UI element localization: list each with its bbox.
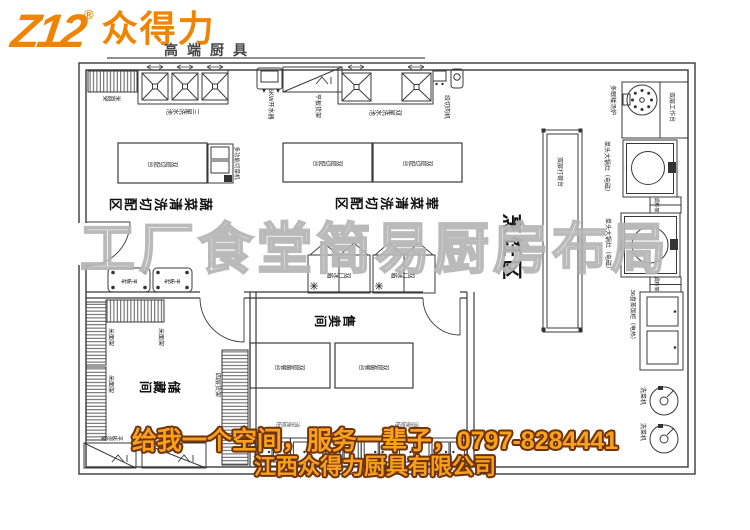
label-prep-counter: 双层打荷台 bbox=[556, 157, 562, 187]
kitchen-floorplan-page: 米面架 三星洗水池 6KW开水器 平板货架 双星洗水池 绞切肉机 双层切配台 多… bbox=[0, 0, 750, 530]
brand-logo: Z12®众得力 高端厨具 bbox=[12, 0, 216, 58]
label-rice-rack-topleft: 米面架 bbox=[103, 94, 121, 100]
rice-rack-topleft bbox=[88, 71, 137, 92]
label-rack-storage-top: 米面架 bbox=[157, 328, 163, 346]
soup-stove bbox=[622, 82, 688, 138]
veg-washer-1 bbox=[650, 386, 678, 415]
fridge-2 bbox=[373, 243, 435, 293]
logo-z12-mark: Z12 bbox=[8, 3, 88, 58]
meat-grinder bbox=[433, 69, 463, 88]
label-wok-1: 单头大锅灶（电磁） bbox=[603, 141, 609, 195]
entrance-opening bbox=[78, 223, 88, 265]
label-veg-cut-table: 双层切配台 bbox=[148, 160, 178, 166]
veg-cutter-machine bbox=[208, 144, 233, 183]
label-work-table: 双层工作台 bbox=[668, 92, 674, 122]
flat-shelf-top bbox=[283, 67, 342, 92]
banner-company-name: 江西众得力厨具有限公司 bbox=[0, 449, 750, 481]
label-veg-washer-1: 洗菜机 bbox=[639, 387, 645, 405]
label-flat-shelf-top: 平板货架 bbox=[314, 94, 320, 118]
label-area-cooking: 烹饪区 bbox=[499, 214, 519, 283]
label-soup-stove: 多眼矮汤炉 bbox=[609, 85, 615, 115]
label-veg-cutter: 多功能切菜机 bbox=[233, 147, 239, 180]
door-sales bbox=[423, 298, 460, 335]
wok-stove-1 bbox=[623, 140, 677, 197]
label-cart-1: 平板车 bbox=[121, 277, 138, 283]
label-rack-storage-left-2: 米面架 bbox=[107, 375, 113, 393]
label-meat-cut-table-2: 双层切配台 bbox=[403, 159, 433, 165]
label-fridge-1: 双门冰箱 bbox=[327, 271, 351, 277]
door-storage bbox=[200, 298, 244, 342]
label-serve-table-1: 双层备餐台 bbox=[275, 363, 305, 369]
label-meat-cut-table-1: 双层切配台 bbox=[313, 159, 343, 165]
label-area-sales: 售卖间 bbox=[312, 312, 355, 325]
label-water-boiler: 6KW开水器 bbox=[267, 88, 273, 119]
label-fridge-2: 双门冰箱 bbox=[391, 271, 415, 277]
label-area-storage: 储藏间 bbox=[137, 378, 180, 391]
label-four-layer-rack: 四层货架 bbox=[214, 373, 220, 397]
label-area-meat: 荤菜清洗切配区 bbox=[334, 194, 439, 207]
label-spice-rack-1: 调料架 bbox=[654, 198, 659, 213]
label-two-star-sink: 双星洗水池 bbox=[370, 108, 403, 115]
fridge-1 bbox=[308, 243, 370, 293]
label-rack-storage-left-1: 米面架 bbox=[107, 328, 113, 346]
label-rice-steamer: 36盘蒸饭柜（电热） bbox=[629, 290, 635, 343]
rice-rack-storage-top bbox=[106, 300, 164, 322]
label-serve-table-2: 双层备餐台 bbox=[359, 363, 389, 369]
wok-stove-2 bbox=[621, 213, 680, 277]
label-cart-2: 平板车 bbox=[164, 277, 181, 283]
door-entrance bbox=[86, 222, 130, 266]
rice-steamer bbox=[640, 292, 683, 370]
label-spice-rack-2: 调料架 bbox=[654, 277, 659, 292]
label-area-veg: 蔬菜清洗切配区 bbox=[108, 195, 213, 208]
label-wok-2: 单头大锅灶（电磁） bbox=[604, 218, 610, 272]
logo-underline bbox=[107, 57, 425, 59]
rice-rack-storage-left-1 bbox=[86, 302, 106, 365]
label-three-star-sink: 三星洗水池 bbox=[167, 107, 200, 114]
label-meat-grinder: 绞切肉机 bbox=[443, 95, 449, 119]
